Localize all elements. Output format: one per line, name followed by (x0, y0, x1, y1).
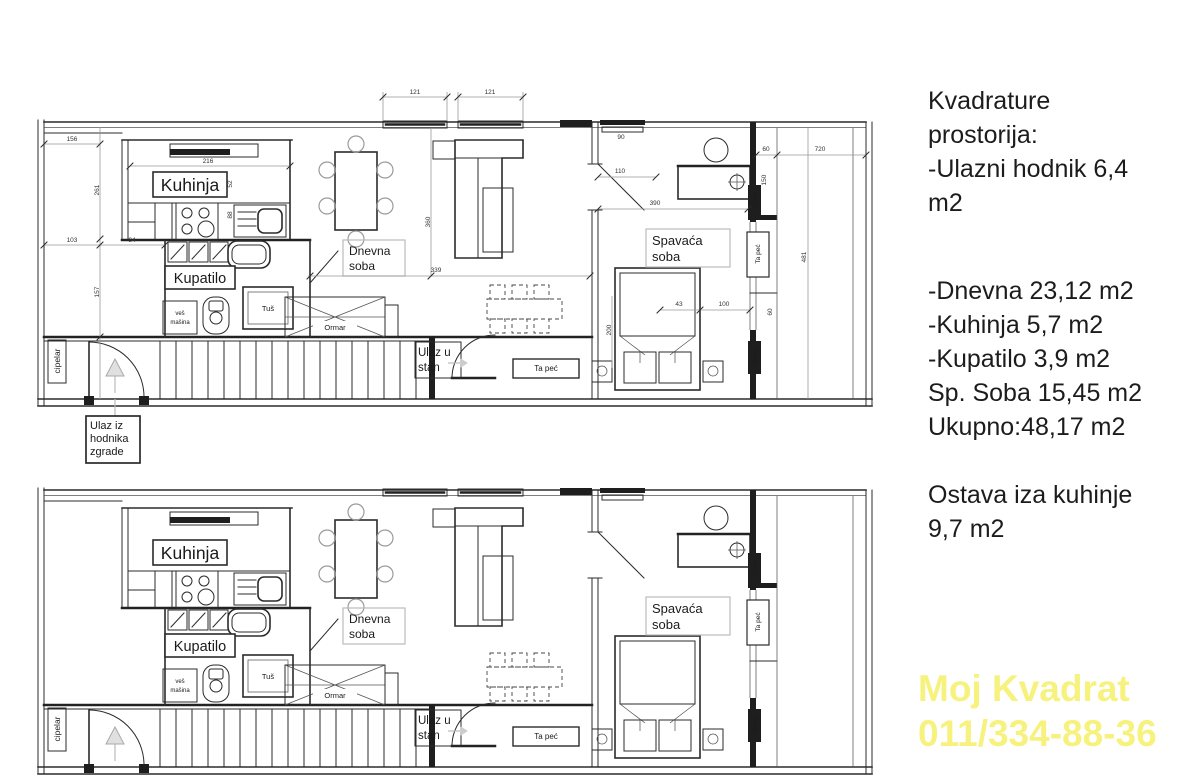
dim-k52: 52 (227, 180, 234, 188)
info-line: prostorija: (928, 118, 1193, 152)
building-entrance-label-box: Ulaz iz hodnika zgrade (86, 399, 140, 463)
dim-bed-win: 110 (615, 168, 626, 175)
dim-200: 200 (606, 324, 613, 335)
dim-bedroom-door: 390 (650, 200, 661, 207)
building-entrance-label-1: Ulaz iz (90, 420, 123, 432)
dim-living-width: 339 (431, 267, 442, 274)
info-line: m2 (928, 186, 1193, 220)
floorplan-bottom (38, 488, 872, 774)
dim-entry-w2: 84 (128, 237, 136, 244)
floorplan-page: cipelar (0, 0, 1200, 778)
info-line: Sp. Soba 15,45 m2 (928, 376, 1193, 410)
dim-60a: 60 (762, 146, 770, 153)
dim-living-height: 360 (425, 216, 432, 227)
info-line: 9,7 m2 (928, 512, 1193, 546)
dim-150: 150 (761, 174, 768, 185)
info-line: -Ulazni hodnik 6,4 (928, 152, 1193, 186)
dim-kitchen-width: 216 (203, 158, 214, 165)
floorplan-drawing: cipelar (0, 0, 880, 778)
info-line: -Kuhinja 5,7 m2 (928, 308, 1193, 342)
info-line: -Dnevna 23,12 m2 (928, 274, 1193, 308)
dim-hall-height: 261 (94, 184, 101, 195)
watermark-line-1: Moj Kvadrat (918, 666, 1157, 711)
dim-100: 100 (719, 301, 730, 308)
dim-hall-width: 156 (67, 136, 78, 143)
area-info-panel: Kvadrature prostorija: -Ulazni hodnik 6,… (928, 50, 1193, 580)
dim-window-left: 121 (410, 89, 421, 96)
dim-window-right: 121 (485, 89, 496, 96)
dim-entry-height: 157 (94, 286, 101, 297)
info-line: Kvadrature (928, 84, 1193, 118)
info-line: Ostava iza kuhinje (928, 478, 1193, 512)
building-entrance-label-3: zgrade (90, 446, 124, 458)
dim-481: 481 (801, 251, 808, 262)
floorplan-top (38, 120, 872, 406)
dim-entry-w1: 103 (67, 237, 78, 244)
dim-k88: 88 (227, 211, 234, 219)
dim-90: 90 (617, 134, 625, 141)
building-entrance-label-2: hodnika (90, 433, 129, 445)
info-line: Ukupno:48,17 m2 (928, 410, 1193, 444)
dim-60b: 60 (767, 308, 774, 316)
dim-720: 720 (815, 146, 826, 153)
watermark-line-2: 011/334-88-36 (918, 711, 1157, 756)
dim-43: 43 (675, 301, 683, 308)
watermark: Moj Kvadrat 011/334-88-36 (918, 666, 1157, 756)
info-line: -Kupatilo 3,9 m2 (928, 342, 1193, 376)
